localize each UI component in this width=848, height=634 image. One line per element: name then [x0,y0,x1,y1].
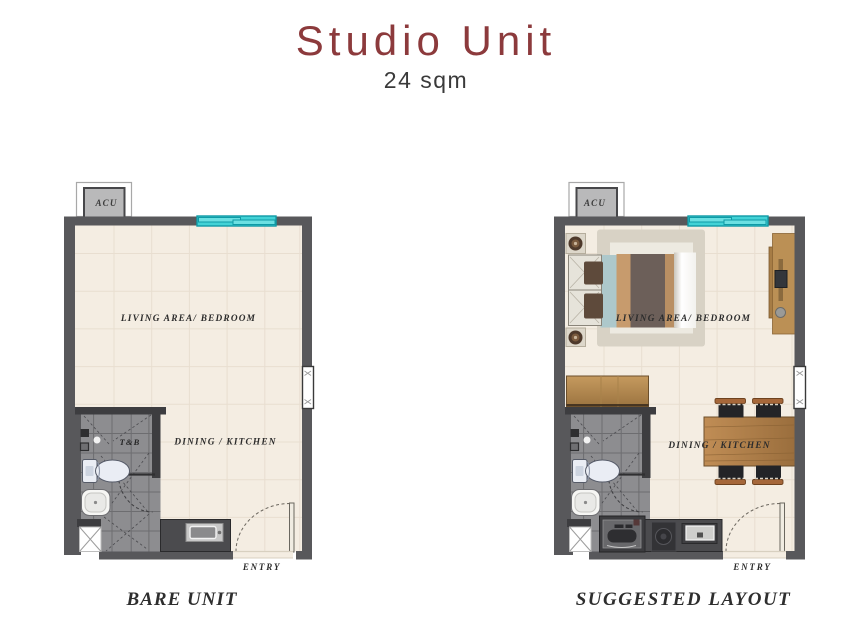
svg-text:SUGGESTED LAYOUT: SUGGESTED LAYOUT [576,589,792,610]
svg-text:ENTRY: ENTRY [732,562,771,572]
svg-text:T&B: T&B [119,437,140,447]
svg-text:DINING / KITCHEN: DINING / KITCHEN [173,438,276,448]
svg-text:ACU: ACU [583,198,606,208]
svg-text:ACU: ACU [94,198,117,208]
svg-text:24 sqm: 24 sqm [384,67,468,93]
svg-text:DINING / KITCHEN: DINING / KITCHEN [667,441,770,451]
svg-text:LIVING AREA/ BEDROOM: LIVING AREA/ BEDROOM [615,314,751,324]
svg-text:BARE UNIT: BARE UNIT [126,589,238,610]
svg-text:Studio Unit: Studio Unit [296,17,556,64]
svg-text:ENTRY: ENTRY [242,562,281,572]
svg-text:LIVING AREA/ BEDROOM: LIVING AREA/ BEDROOM [120,314,256,324]
